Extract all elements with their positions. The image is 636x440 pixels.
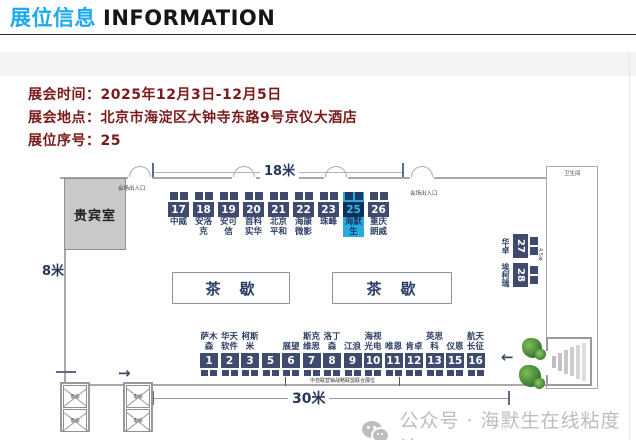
booth-number: 10: [364, 353, 382, 368]
storage-squares-icon: [447, 370, 463, 376]
booth-7: 斯克 维思7: [303, 330, 321, 376]
booth-number: 8: [323, 353, 341, 368]
booth-27: 华卓27: [500, 234, 538, 258]
info-time-value: 2025年12月3日-12月5日: [101, 87, 282, 103]
booth-company-label: 重庆 朗威: [370, 218, 387, 237]
booth-number: 19: [218, 202, 239, 217]
booth-number: 25: [343, 202, 364, 217]
dimension-tick: [152, 163, 154, 177]
booth-1: 萨木 森1: [200, 330, 218, 376]
booth-26: 26重庆 朗威: [368, 192, 389, 237]
booth-12: 肯卓12: [405, 330, 423, 376]
storage-squares-icon: [320, 192, 338, 200]
card-right-edge: [629, 52, 630, 440]
booth-company-label: 柯斯 米: [241, 330, 258, 353]
booth-19: 19安可 信: [218, 192, 239, 237]
watermark: 公众号 · 海默生在线粘度计: [362, 406, 636, 440]
booth-23: 23珠峰: [318, 192, 339, 237]
booth-company-label: 中威: [170, 218, 187, 228]
background-band: [0, 52, 636, 76]
booth-company-label: 北京 平和: [270, 218, 287, 237]
plant-icon: [519, 365, 541, 387]
storage-squares-icon: [530, 237, 538, 255]
storage-squares-icon: [468, 370, 484, 376]
booth-company-label: 珠峰: [320, 218, 337, 228]
booth-number: 28: [513, 263, 528, 287]
booth-company-label: 仪恩: [446, 330, 463, 353]
page-title-en: INFORMATION: [103, 6, 275, 30]
restroom-label: 卫生间: [564, 169, 581, 177]
entrance-label-left: 会场出入口: [118, 184, 146, 192]
floorplan-map: 卫生间 ← 贵宾室 会场出入口 会场出入口 18米 8米 4.5米 17中威18…: [38, 156, 600, 438]
elevator-icon: 电梯: [126, 385, 150, 408]
booth-company-label: 安可 信: [220, 218, 237, 237]
tea-break-box: 茶 歇: [172, 272, 290, 304]
booth-number: 3: [241, 353, 259, 368]
storage-squares-icon: [242, 370, 258, 376]
bottom-booth-row: 萨木 森1华天 软件2柯斯 米35展望6斯克 维思7洛丁 森8江浪9海视 光电1…: [200, 330, 487, 376]
booth-11: 唯恩11: [385, 330, 403, 376]
storage-squares-icon: [530, 266, 538, 284]
arrow-right-icon: →: [118, 366, 131, 381]
booth-number: 23: [318, 202, 339, 217]
booth-number: 15: [446, 353, 464, 368]
storage-squares-icon: [222, 370, 238, 376]
booth-number: 9: [344, 353, 362, 368]
booth-company-label: 埃柯瑞: [500, 263, 511, 287]
booth-20: 20首科 实华: [243, 192, 264, 237]
booth-company-label: 肯卓: [405, 330, 422, 353]
booth-number: 12: [405, 353, 423, 368]
booth-number: 5: [262, 353, 280, 368]
booth-number: 13: [426, 353, 444, 368]
info-booth-value: 25: [101, 133, 121, 149]
info-booth-label: 展位序号：: [28, 133, 101, 149]
booth-16: 航天 长征16: [467, 330, 485, 376]
booth-28: 埃柯瑞28: [500, 263, 538, 287]
booth-company-label: 唯恩: [385, 330, 402, 353]
dimension-label-bottom: 30米: [288, 388, 329, 408]
booth-number: 7: [303, 353, 321, 368]
booth-number: 11: [385, 353, 403, 368]
booth-2: 华天 软件2: [221, 330, 239, 376]
watermark-text: 公众号 · 海默生在线粘度计: [399, 406, 636, 440]
booth-company-label: 华天 软件: [221, 330, 238, 353]
storage-squares-icon: [295, 192, 313, 200]
stairs-icon: [546, 337, 592, 386]
storage-squares-icon: [304, 370, 320, 376]
elevator-icon: 电梯: [126, 409, 150, 432]
booth-25: 25海默 生: [343, 192, 364, 237]
booth-number: 1: [200, 353, 218, 368]
storage-squares-icon: [365, 370, 381, 376]
dimension-label-top: 18米: [260, 160, 299, 179]
elevator-bank: 电梯 电梯: [123, 382, 153, 432]
plant-icon: [522, 338, 542, 358]
storage-squares-icon: [324, 370, 340, 376]
booth-17: 17中威: [168, 192, 189, 237]
alliance-note: 中自联营销战略联盟联合展位: [285, 377, 400, 386]
info-time-label: 展会时间：: [28, 87, 101, 103]
booth-13: 英思 科13: [426, 330, 444, 376]
storage-squares-icon: [283, 370, 299, 376]
booth-company-label: 华卓: [500, 238, 511, 254]
elevator-icon: 电梯: [63, 409, 87, 432]
booth-company-label: 洛丁 森: [323, 330, 340, 353]
booth-10: 海视 光电10: [364, 330, 382, 376]
exhibition-info-page: 展位信息INFORMATION 展会时间：2025年12月3日-12月5日 展会…: [0, 0, 636, 440]
booth-company-label: 斯克 维思: [303, 330, 320, 353]
booth-number: 2: [221, 353, 239, 368]
booth-15: 仪恩15: [446, 330, 464, 376]
info-line-place: 展会地点：北京市海淀区大钟寺东路9号京仪大酒店: [28, 107, 357, 130]
storage-squares-icon: [345, 192, 363, 200]
booth-company-label: 首科 实华: [245, 218, 262, 237]
page-title: 展位信息INFORMATION: [10, 2, 275, 32]
info-line-booth: 展位序号：25: [28, 130, 357, 153]
title-divider: [0, 34, 636, 35]
door-icon: [128, 166, 152, 179]
booth-number: 6: [282, 353, 300, 368]
booth-number: 20: [243, 202, 264, 217]
exhibition-info-block: 展会时间：2025年12月3日-12月5日 展会地点：北京市海淀区大钟寺东路9号…: [28, 84, 357, 153]
booth-number: 17: [168, 202, 189, 217]
booth-company-label: 海视 光电: [364, 330, 381, 353]
booth-company-label: 萨木 森: [200, 330, 217, 353]
storage-squares-icon: [201, 370, 217, 376]
storage-squares-icon: [370, 192, 388, 200]
booth-number: 22: [293, 202, 314, 217]
info-place-label: 展会地点：: [28, 110, 101, 126]
storage-squares-icon: [386, 370, 402, 376]
booth-22: 22海康 微影: [293, 192, 314, 237]
page-title-zh: 展位信息: [10, 6, 96, 30]
top-booth-row: 17中威18安洛 克19安可 信20首科 实华21北京 平和22海康 微影23珠…: [168, 192, 393, 237]
booth-6: 展望6: [282, 330, 300, 376]
booth-number: 26: [368, 202, 389, 217]
dimension-line-bottom: [152, 398, 510, 399]
arrow-left-icon: ←: [501, 350, 514, 365]
elevator-icon: 电梯: [63, 385, 87, 408]
wechat-icon: [362, 420, 391, 440]
wall-bottom-left-segment: [88, 384, 123, 386]
storage-squares-icon: [245, 192, 263, 200]
entrance-label-right: 会场出入口: [410, 189, 438, 197]
storage-squares-icon: [195, 192, 213, 200]
booth-number: 18: [193, 202, 214, 217]
storage-squares-icon: [170, 192, 188, 200]
booth-company-label: 航天 长征: [467, 330, 484, 353]
booth-5: 5: [262, 330, 280, 376]
dimension-label-left: 8米: [38, 260, 68, 279]
storage-squares-icon: [263, 370, 279, 376]
elevator-bank: 电梯 电梯: [60, 382, 90, 432]
info-line-time: 展会时间：2025年12月3日-12月5日: [28, 84, 357, 107]
storage-squares-icon: [345, 370, 361, 376]
dimension-tick: [56, 371, 76, 373]
dimension-tick: [508, 391, 510, 405]
booth-number: 21: [268, 202, 289, 217]
booth-8: 洛丁 森8: [323, 330, 341, 376]
booth-company-label: 展望: [282, 330, 299, 353]
booth-9: 江浪9: [344, 330, 362, 376]
booth-company-label: 安洛 克: [195, 218, 212, 237]
storage-squares-icon: [406, 370, 422, 376]
storage-squares-icon: [220, 192, 238, 200]
booth-18: 18安洛 克: [193, 192, 214, 237]
dimension-tick: [402, 163, 404, 177]
booth-company-label: 海康 微影: [295, 218, 312, 237]
booth-company-label: 海默 生: [345, 218, 362, 237]
storage-squares-icon: [427, 370, 443, 376]
door-icon: [410, 166, 434, 179]
dimension-label-right: 4.5米: [537, 248, 544, 261]
booth-company-label: 江浪: [344, 330, 361, 353]
booth-company-label: 英思 科: [426, 330, 443, 353]
storage-squares-icon: [270, 192, 288, 200]
booth-number: 27: [513, 234, 528, 258]
tea-break-box: 茶 歇: [332, 272, 452, 304]
booth-21: 21北京 平和: [268, 192, 289, 237]
info-place-value: 北京市海淀区大钟寺东路9号京仪大酒店: [101, 110, 358, 126]
booth-3: 柯斯 米3: [241, 330, 259, 376]
booth-number: 16: [467, 353, 485, 368]
vip-room: 贵宾室: [64, 178, 126, 250]
